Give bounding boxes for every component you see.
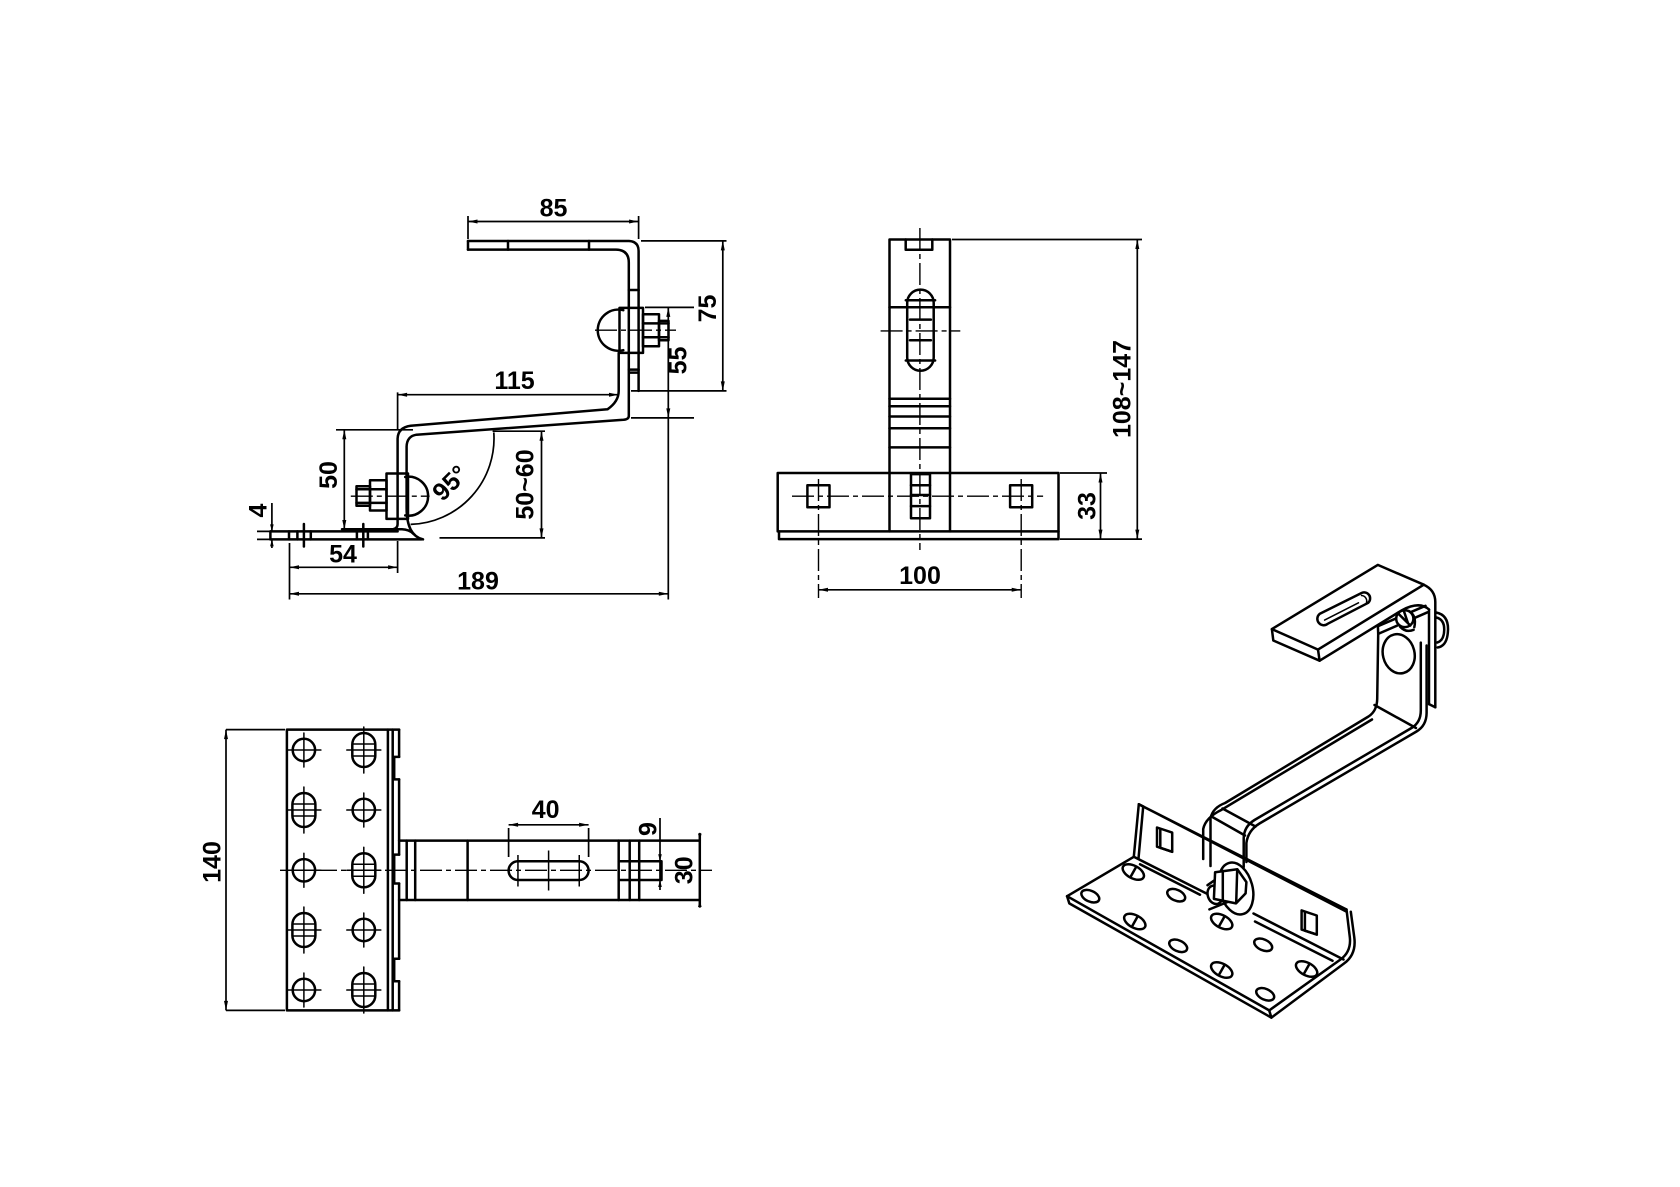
svg-text:40: 40 <box>532 796 560 824</box>
svg-text:55: 55 <box>665 347 693 375</box>
svg-text:9: 9 <box>635 822 663 836</box>
svg-text:50: 50 <box>315 461 343 489</box>
svg-text:108~147: 108~147 <box>1109 340 1137 438</box>
svg-text:189: 189 <box>457 568 499 596</box>
svg-text:54: 54 <box>329 541 357 569</box>
svg-text:4: 4 <box>245 503 273 517</box>
svg-text:85: 85 <box>540 195 568 223</box>
svg-text:140: 140 <box>199 841 227 883</box>
svg-text:115: 115 <box>494 367 534 395</box>
svg-text:75: 75 <box>694 295 722 323</box>
svg-text:100: 100 <box>899 562 941 590</box>
svg-text:50~60: 50~60 <box>512 449 540 519</box>
svg-text:33: 33 <box>1074 492 1102 520</box>
svg-text:30: 30 <box>671 856 699 884</box>
